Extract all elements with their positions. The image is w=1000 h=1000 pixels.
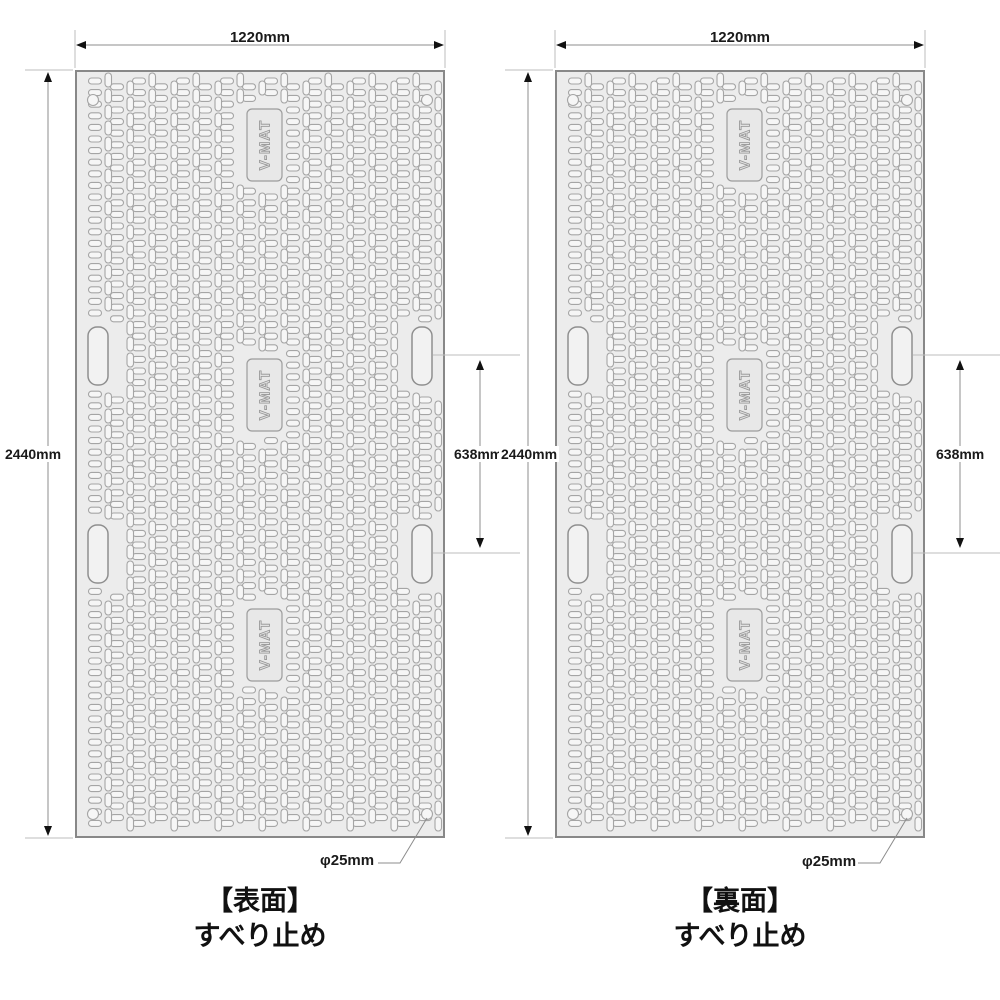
plate-logo-text: V-MAT	[737, 620, 754, 671]
hole-diameter-label-front: φ25mm	[320, 852, 374, 869]
width-dimension-label-front: 1220mm	[200, 29, 320, 46]
mat-panel-front-drawing: V-MATV-MATV-MAT	[75, 70, 445, 838]
plate-logo-text: V-MAT	[737, 370, 754, 421]
caption-front-subtitle: すべり止め	[135, 919, 385, 954]
height-dimension-label-front: 2440mm	[3, 446, 63, 462]
slot-pitch-dimension-label-back: 638mm	[934, 446, 986, 462]
caption-back-title: 【裏面】	[615, 884, 865, 919]
mat-panel-back-drawing: V-MATV-MATV-MAT	[555, 70, 925, 838]
caption-front-title: 【表面】	[135, 884, 385, 919]
hole-diameter-label-back: φ25mm	[802, 853, 856, 870]
plate-logo-text: V-MAT	[737, 120, 754, 171]
caption-back-subtitle: すべり止め	[615, 919, 865, 954]
caption-front: 【表面】 すべり止め	[135, 884, 385, 954]
plate-logo-text: V-MAT	[257, 620, 274, 671]
height-dimension-label-back: 2440mm	[499, 446, 559, 462]
width-dimension-label-back: 1220mm	[680, 29, 800, 46]
plate-logo-text: V-MAT	[257, 370, 274, 421]
plate-logo-text: V-MAT	[257, 120, 274, 171]
slot-pitch-dimension-label-front: 638mm	[452, 446, 504, 462]
caption-back: 【裏面】 すべり止め	[615, 884, 865, 954]
technical-drawing-page: V-MATV-MATV-MAT V-MATV-MATV-MAT 1220mm 2…	[0, 0, 1000, 1000]
